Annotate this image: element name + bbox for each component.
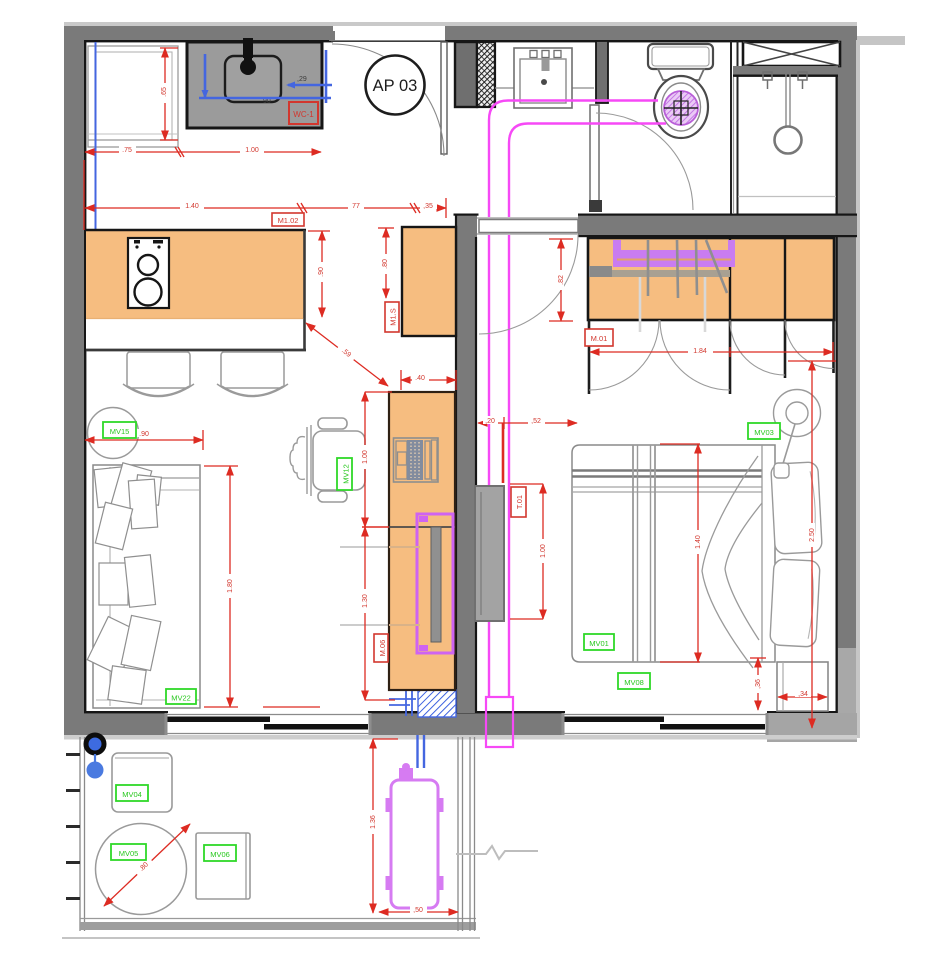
- svg-text:1.80: 1.80: [227, 579, 234, 593]
- svg-text:M1.S: M1.S: [389, 308, 398, 326]
- svg-text:AP 03: AP 03: [373, 77, 418, 95]
- svg-text:.40: .40: [415, 375, 425, 382]
- svg-text:M.06: M.06: [378, 640, 387, 657]
- svg-text:M1.02: M1.02: [278, 216, 299, 225]
- svg-text:M.01: M.01: [591, 334, 608, 343]
- svg-text:,29: ,29: [297, 76, 307, 83]
- svg-text:.80: .80: [382, 259, 389, 269]
- svg-text:,20: ,20: [485, 418, 495, 425]
- svg-text:,52: ,52: [531, 418, 541, 425]
- svg-text:1.00: 1.00: [540, 544, 547, 558]
- svg-text:.90: .90: [139, 431, 149, 438]
- svg-text:,35: ,35: [423, 203, 433, 210]
- svg-text:1.00: 1.00: [245, 147, 259, 154]
- svg-text:,50: ,50: [413, 907, 423, 914]
- svg-text:.75: .75: [122, 147, 132, 154]
- svg-text:MV03: MV03: [754, 428, 774, 437]
- svg-text:T.01: T.01: [515, 495, 524, 509]
- svg-text:1.84: 1.84: [693, 348, 707, 355]
- svg-text:,36: ,36: [755, 679, 762, 689]
- svg-text:77: 77: [352, 203, 360, 210]
- svg-text:.82: .82: [558, 275, 565, 285]
- svg-text:1.40: 1.40: [695, 535, 702, 549]
- svg-text:WC-1: WC-1: [293, 110, 314, 119]
- svg-text:1.30: 1.30: [362, 594, 369, 608]
- svg-text:MV12: MV12: [342, 464, 351, 484]
- svg-text:1.40: 1.40: [185, 203, 199, 210]
- svg-text:MV05: MV05: [119, 849, 139, 858]
- svg-text:MV08: MV08: [624, 678, 644, 687]
- svg-text:MV22: MV22: [171, 694, 191, 703]
- svg-text:.90: .90: [318, 267, 325, 277]
- svg-text:1.36: 1.36: [370, 815, 377, 829]
- svg-text:MV15: MV15: [110, 427, 130, 436]
- svg-text:MV06: MV06: [210, 850, 230, 859]
- svg-text:2.50: 2.50: [809, 528, 816, 542]
- svg-text:,34: ,34: [798, 691, 808, 698]
- svg-text:MV04: MV04: [122, 790, 142, 799]
- svg-text:1.00: 1.00: [362, 450, 369, 464]
- svg-text:.65: .65: [161, 87, 168, 97]
- svg-text:MV01: MV01: [589, 639, 609, 648]
